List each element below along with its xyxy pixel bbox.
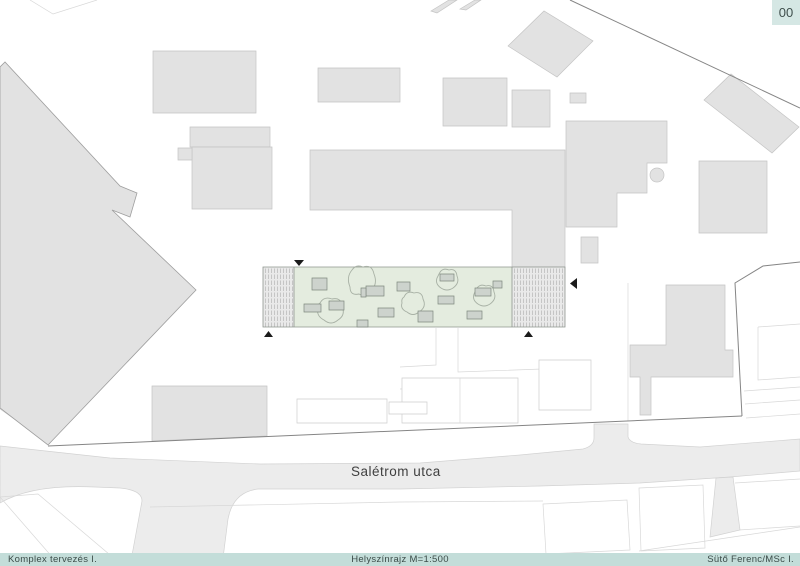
furniture-item — [366, 286, 384, 296]
street-label: Salétrom utca — [351, 464, 441, 479]
building-footprint — [443, 78, 507, 126]
building-outline — [389, 402, 427, 414]
building-outline — [297, 399, 387, 423]
building-footprint — [431, 0, 457, 13]
site-strip-layer — [263, 267, 565, 327]
parcel-line — [543, 500, 630, 554]
building-footprint — [460, 0, 481, 10]
furniture-item — [440, 274, 454, 281]
parcel-line — [744, 387, 800, 418]
site-plan-canvas — [0, 0, 800, 566]
furniture-item — [312, 278, 327, 290]
drawing-sheet: Salétrom utca 00 Komplex tervezés I. Hel… — [0, 0, 800, 566]
furniture-item — [397, 282, 410, 291]
site-boundary — [735, 262, 800, 416]
building-footprint — [152, 386, 267, 441]
sheet-number-badge: 00 — [772, 0, 800, 25]
building-footprint — [508, 11, 593, 77]
furniture-item — [467, 311, 482, 319]
entrance-arrow — [570, 278, 577, 289]
entrance-arrow — [264, 331, 273, 337]
furniture-item — [329, 301, 344, 310]
site-boundary — [570, 0, 800, 108]
hatch-block — [512, 267, 565, 327]
building-footprint — [153, 51, 256, 113]
parcel-line — [30, 0, 97, 14]
building-footprint — [512, 90, 550, 127]
building-footprint — [318, 68, 400, 102]
title-block-bar: Komplex tervezés I. Helyszínrajz M=1:500… — [0, 553, 800, 566]
parcel-line — [639, 485, 705, 551]
furniture-item — [357, 320, 368, 327]
building-footprint — [178, 148, 192, 160]
hatch-block — [263, 267, 294, 327]
building-footprint — [699, 161, 767, 233]
furniture-item — [493, 281, 502, 288]
parcel-line — [735, 479, 800, 530]
building-footprint — [704, 74, 799, 153]
title-block-author: Sütő Ferenc/MSc I. — [707, 554, 794, 565]
building-footprint — [581, 237, 598, 263]
building-footprint — [570, 93, 586, 103]
entrance-arrow — [294, 260, 304, 266]
entrance-arrow — [524, 331, 533, 337]
building-footprint — [192, 147, 272, 209]
furniture-item — [304, 304, 321, 312]
parcel-line — [400, 328, 436, 367]
road-alley — [710, 477, 740, 537]
building-footprint — [310, 150, 565, 267]
building-outline — [539, 360, 591, 410]
furniture-item — [438, 296, 454, 304]
building-footprint — [630, 285, 733, 415]
furniture-item — [378, 308, 394, 317]
title-block-drawing-title: Helyszínrajz M=1:500 — [0, 554, 800, 565]
parcel-line — [758, 324, 800, 380]
outlined-buildings-layer — [297, 360, 591, 423]
furniture-item — [361, 288, 366, 297]
round-feature — [650, 168, 664, 182]
furniture-item — [475, 288, 491, 296]
buildings-layer — [0, 0, 799, 445]
furniture-item — [418, 311, 433, 322]
sheet-number: 00 — [779, 5, 793, 20]
building-footprint — [190, 127, 270, 147]
